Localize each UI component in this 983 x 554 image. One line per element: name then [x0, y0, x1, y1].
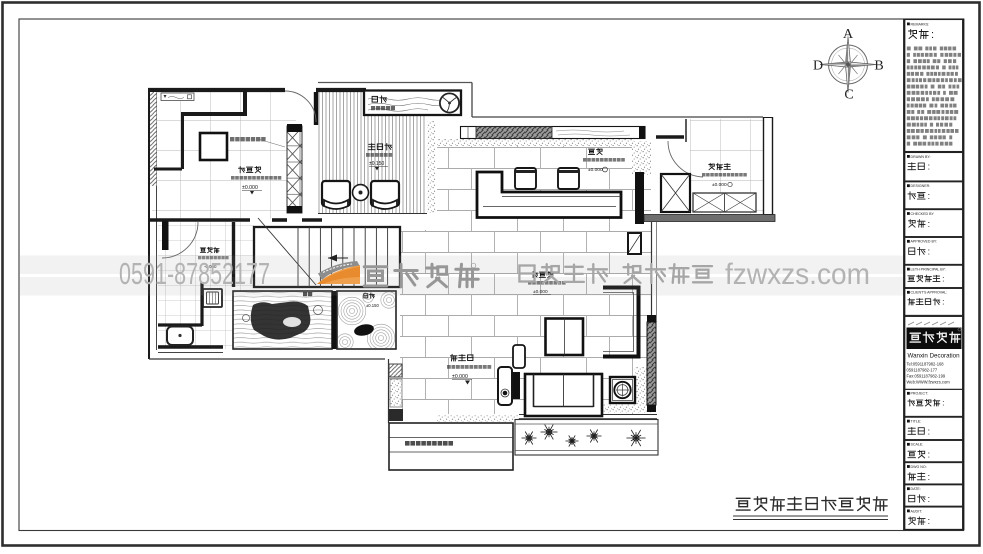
svg-text:0591-87852177: 0591-87852177 — [119, 256, 270, 291]
svg-text:TITLE:: TITLE: — [911, 420, 922, 424]
svg-text:DESIGNER:: DESIGNER: — [911, 184, 931, 188]
svg-text::: : — [942, 273, 944, 283]
svg-text:REMARKS:: REMARKS: — [911, 22, 930, 26]
svg-text:±0.150: ±0.150 — [366, 303, 379, 308]
svg-text:SCALE:: SCALE: — [911, 443, 924, 447]
svg-text:Tel:0591187982-168: Tel:0591187982-168 — [907, 362, 945, 367]
svg-text:AUDIT:: AUDIT: — [911, 509, 923, 513]
svg-text::: : — [931, 29, 934, 41]
svg-text::: : — [942, 398, 944, 408]
svg-text:±0.000: ±0.000 — [588, 167, 603, 173]
svg-text:B: B — [874, 59, 883, 74]
svg-text:C: C — [844, 88, 853, 103]
svg-text:CHECKED BY: CHECKED BY — [911, 212, 935, 216]
svg-text:DWG NO:: DWG NO: — [911, 465, 927, 469]
svg-text:DRAWN BY:: DRAWN BY: — [911, 155, 931, 159]
svg-text:Wanxin Decoration: Wanxin Decoration — [907, 353, 960, 360]
svg-text::: : — [928, 450, 931, 461]
svg-text::: : — [928, 247, 931, 258]
svg-text:PROJECT:: PROJECT: — [911, 392, 929, 396]
svg-text::: : — [928, 219, 931, 230]
svg-text:±0.000: ±0.000 — [452, 374, 468, 380]
svg-text::: : — [928, 494, 931, 505]
svg-text:CLIENT'S APPROVAL:: CLIENT'S APPROVAL: — [911, 291, 948, 295]
svg-text::: : — [942, 297, 944, 307]
svg-text:DATE:: DATE: — [911, 487, 921, 491]
svg-text:A: A — [843, 27, 854, 42]
svg-text:±0.000: ±0.000 — [712, 182, 727, 188]
svg-text::: : — [928, 426, 931, 437]
svg-text::: : — [928, 516, 931, 527]
svg-text:fzwxzs.com: fzwxzs.com — [725, 258, 870, 291]
svg-text:±0.000: ±0.000 — [242, 185, 258, 191]
svg-text::: : — [928, 191, 931, 202]
svg-text:±0.150: ±0.150 — [369, 161, 384, 167]
svg-text:APPROVED BY:: APPROVED BY: — [911, 240, 938, 244]
svg-text::: : — [928, 162, 931, 173]
svg-text:Web:WWW.fzwxzs.com: Web:WWW.fzwxzs.com — [907, 380, 951, 385]
svg-text:D: D — [813, 59, 823, 74]
svg-text::: : — [928, 472, 931, 483]
svg-text:LETH PRINCIPAL BY:: LETH PRINCIPAL BY: — [911, 268, 946, 272]
svg-text:Fax:0591187982-199: Fax:0591187982-199 — [907, 374, 946, 379]
svg-text:0591187982-177: 0591187982-177 — [907, 368, 938, 373]
